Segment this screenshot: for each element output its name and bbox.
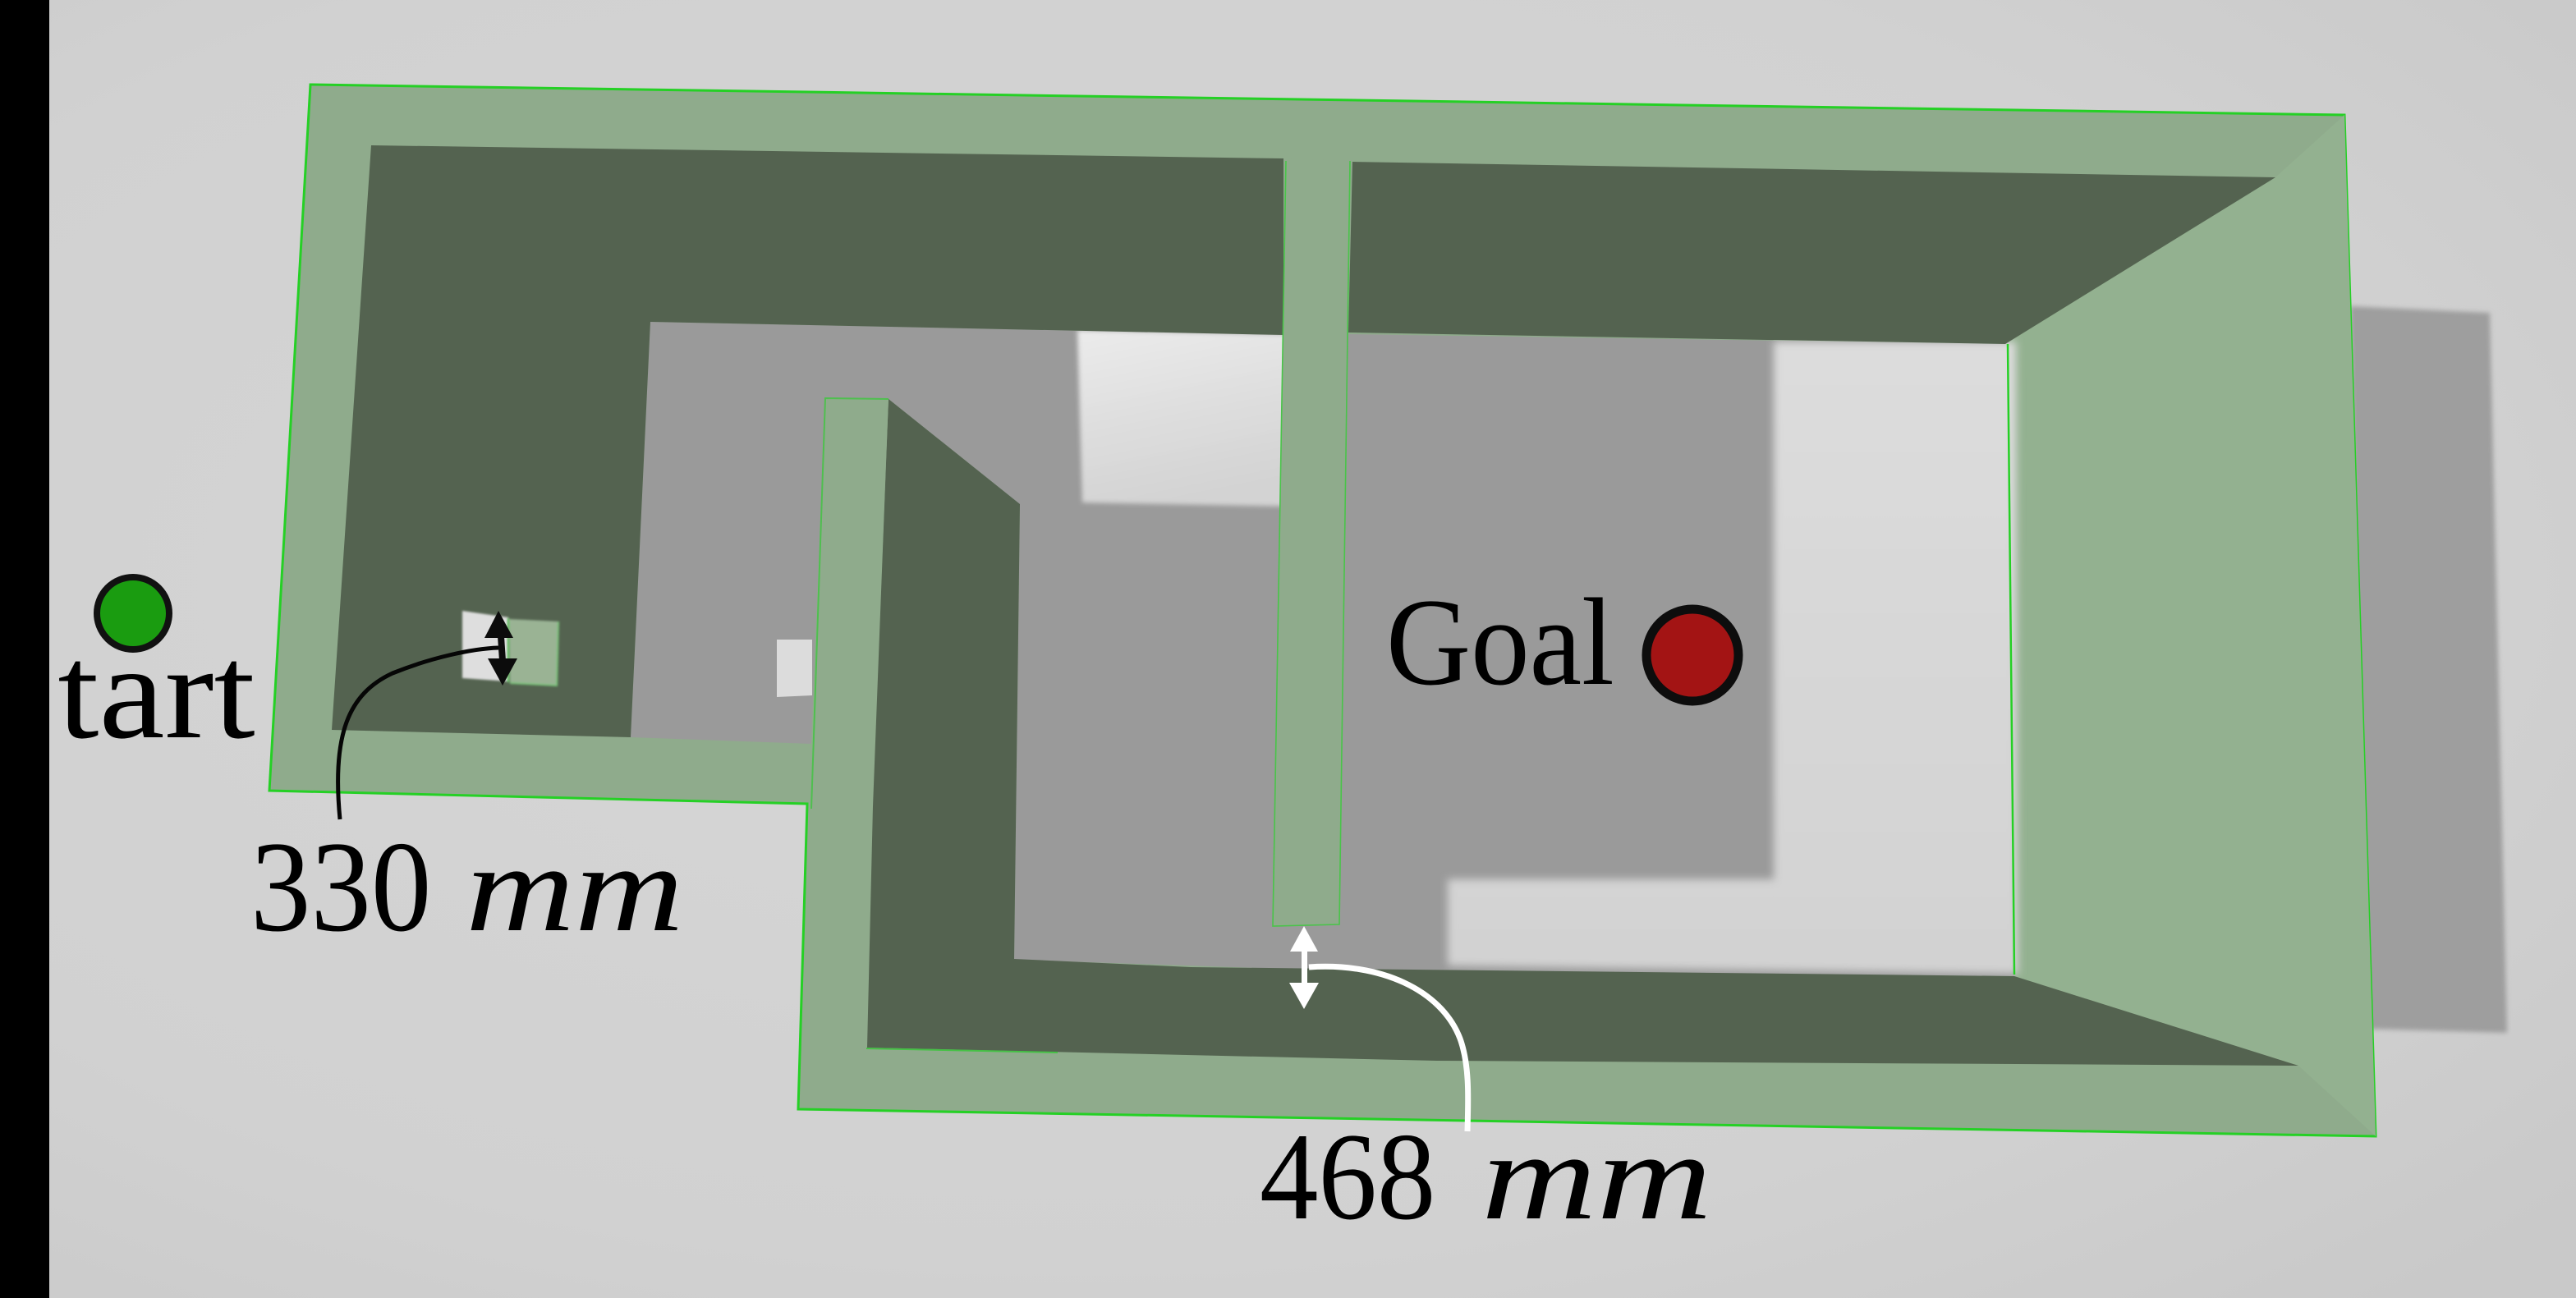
svg-text:mm: mm [1481,1107,1712,1245]
svg-text:468: 468 [1260,1108,1435,1245]
svg-text:mm: mm [466,820,684,958]
svg-text:Goal: Goal [1386,573,1614,711]
svg-text:330: 330 [250,815,431,959]
